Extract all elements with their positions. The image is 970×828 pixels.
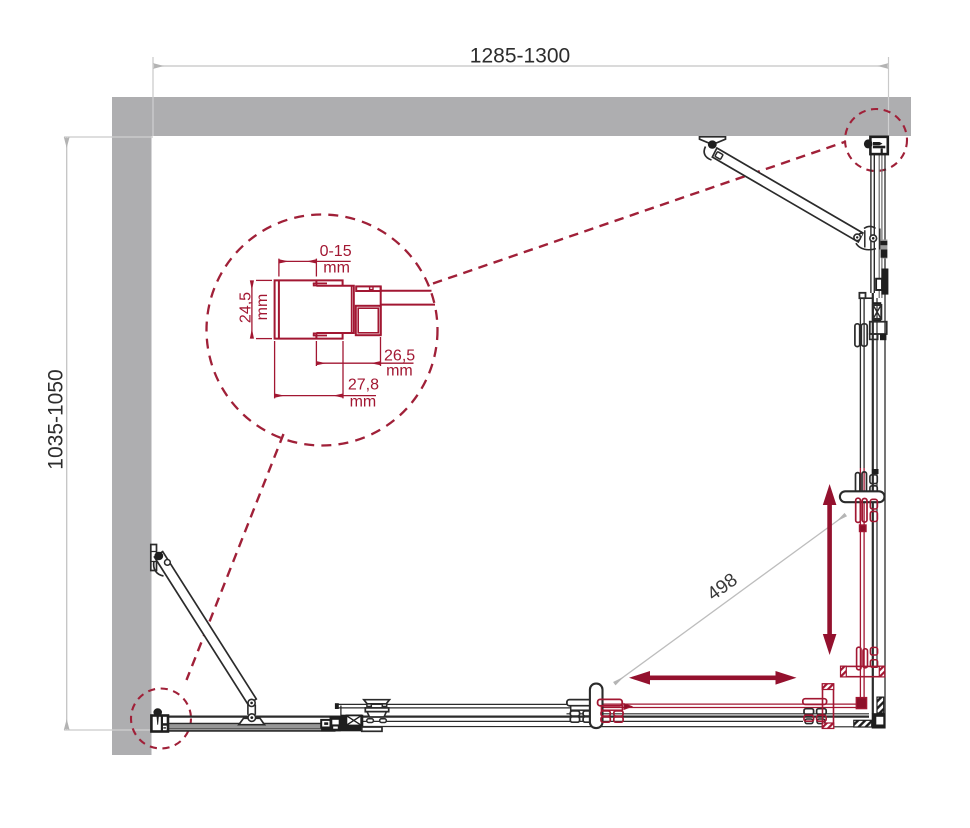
svg-text:1035-1050: 1035-1050 — [45, 369, 68, 469]
svg-text:24,5: 24,5 — [237, 292, 254, 323]
svg-text:mm: mm — [323, 259, 350, 276]
svg-text:27,8: 27,8 — [348, 377, 379, 394]
svg-text:mm: mm — [386, 362, 413, 379]
svg-text:0-15: 0-15 — [320, 243, 352, 260]
svg-text:1285-1300: 1285-1300 — [470, 45, 570, 68]
svg-text:mm: mm — [350, 393, 377, 410]
svg-text:mm: mm — [254, 294, 271, 321]
